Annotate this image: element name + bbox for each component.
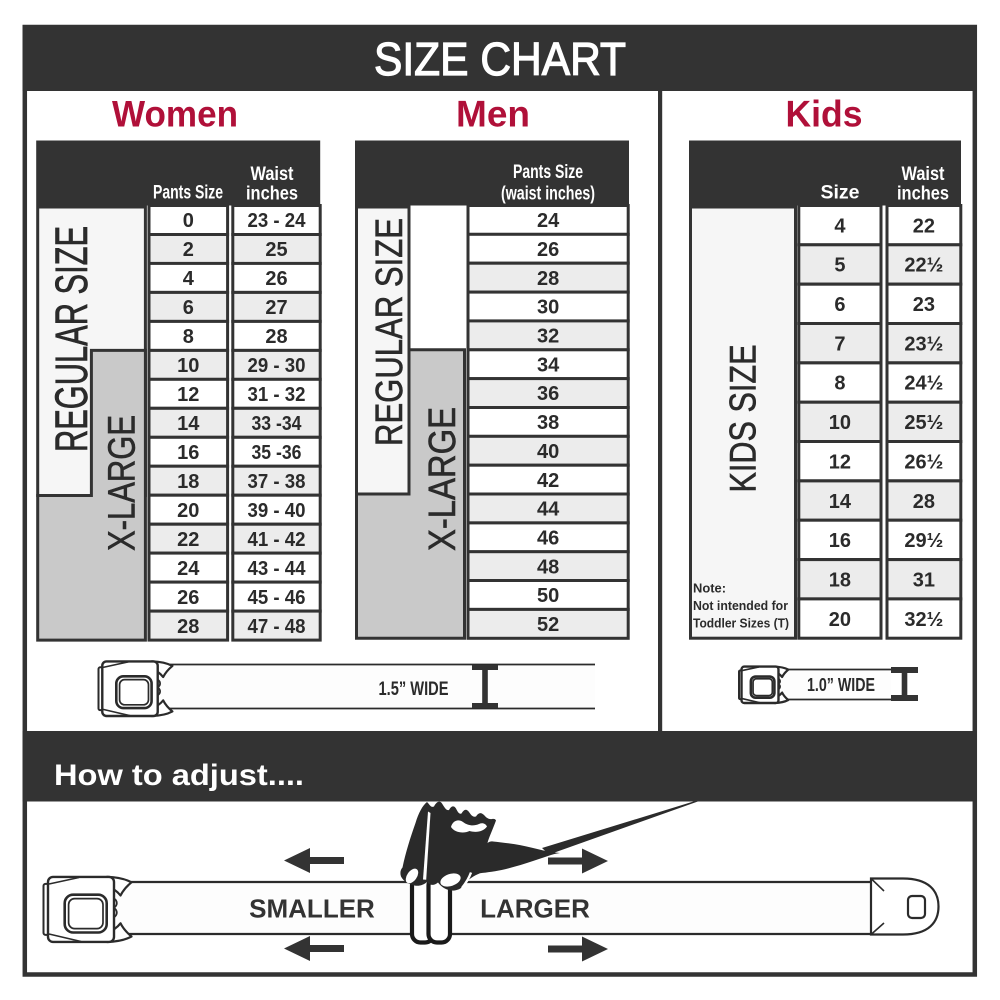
svg-text:29 - 30: 29 - 30 [248, 355, 306, 377]
svg-text:REGULAR SIZE: REGULAR SIZE [46, 226, 97, 452]
svg-text:38: 38 [537, 412, 559, 434]
svg-text:Note:: Note: [693, 581, 726, 596]
svg-text:29½: 29½ [904, 530, 943, 552]
svg-text:1.5” WIDE: 1.5” WIDE [379, 679, 449, 700]
svg-text:24½: 24½ [904, 373, 943, 395]
svg-text:27: 27 [265, 297, 287, 319]
svg-text:Not intended for: Not intended for [693, 598, 788, 613]
svg-text:40: 40 [537, 441, 559, 463]
svg-text:Kids: Kids [786, 94, 863, 135]
svg-text:10: 10 [177, 355, 199, 377]
svg-text:52: 52 [537, 614, 559, 636]
svg-text:28: 28 [265, 326, 287, 348]
svg-text:14: 14 [177, 413, 200, 435]
svg-text:6: 6 [183, 297, 194, 319]
svg-text:25: 25 [265, 239, 287, 261]
svg-text:46: 46 [537, 528, 559, 550]
svg-text:8: 8 [834, 373, 845, 395]
svg-text:Men: Men [456, 94, 530, 135]
svg-text:24: 24 [177, 558, 200, 580]
svg-text:16: 16 [829, 530, 851, 552]
svg-text:Women: Women [112, 94, 238, 135]
svg-text:4: 4 [834, 215, 846, 237]
svg-text:23½: 23½ [904, 333, 943, 355]
svg-text:REGULAR SIZE: REGULAR SIZE [369, 218, 411, 446]
svg-text:44: 44 [537, 499, 560, 521]
svg-text:16: 16 [177, 442, 199, 464]
svg-text:SMALLER: SMALLER [249, 894, 375, 924]
svg-text:30: 30 [537, 297, 559, 319]
svg-text:SIZE CHART: SIZE CHART [374, 33, 626, 85]
svg-text:26: 26 [265, 268, 287, 290]
svg-text:26: 26 [537, 239, 559, 261]
svg-text:26: 26 [177, 587, 199, 609]
svg-text:18: 18 [177, 471, 199, 493]
svg-text:32: 32 [537, 326, 559, 348]
svg-text:14: 14 [829, 491, 852, 513]
svg-text:(waist inches): (waist inches) [501, 183, 595, 205]
svg-text:33 -34: 33 -34 [252, 413, 303, 435]
svg-text:LARGER: LARGER [480, 894, 590, 924]
svg-text:22: 22 [913, 215, 935, 237]
svg-text:22: 22 [177, 529, 199, 551]
svg-text:8: 8 [183, 326, 194, 348]
svg-text:0: 0 [183, 210, 194, 232]
svg-text:20: 20 [177, 500, 199, 522]
svg-text:43 - 44: 43 - 44 [248, 558, 307, 580]
svg-text:35 -36: 35 -36 [252, 442, 302, 464]
svg-text:34: 34 [537, 354, 560, 376]
svg-text:41 - 42: 41 - 42 [248, 529, 306, 551]
svg-text:10: 10 [829, 412, 851, 434]
svg-text:X-LARGE: X-LARGE [422, 407, 464, 551]
svg-text:2: 2 [183, 239, 194, 261]
svg-text:5: 5 [834, 255, 845, 277]
svg-text:50: 50 [537, 585, 559, 607]
svg-text:45 - 46: 45 - 46 [248, 587, 306, 609]
svg-text:22½: 22½ [904, 255, 943, 277]
svg-text:28: 28 [537, 268, 559, 290]
svg-text:28: 28 [913, 491, 935, 513]
svg-text:31: 31 [913, 569, 935, 591]
svg-text:6: 6 [834, 294, 845, 316]
svg-text:KIDS SIZE: KIDS SIZE [723, 345, 764, 493]
svg-text:48: 48 [537, 556, 559, 578]
svg-text:28: 28 [177, 616, 199, 638]
svg-text:32½: 32½ [904, 609, 943, 631]
svg-text:24: 24 [537, 210, 560, 232]
svg-text:37 - 38: 37 - 38 [248, 471, 306, 493]
svg-text:X-LARGE: X-LARGE [102, 415, 144, 551]
svg-text:12: 12 [829, 451, 851, 473]
svg-text:inches: inches [897, 183, 949, 205]
svg-text:39 - 40: 39 - 40 [248, 500, 306, 522]
svg-text:12: 12 [177, 384, 199, 406]
svg-text:20: 20 [829, 609, 851, 631]
svg-text:18: 18 [829, 569, 851, 591]
svg-text:23 - 24: 23 - 24 [248, 210, 307, 232]
svg-text:Pants Size: Pants Size [153, 182, 223, 204]
svg-text:23: 23 [913, 294, 935, 316]
svg-text:47 - 48: 47 - 48 [248, 616, 306, 638]
svg-text:25½: 25½ [904, 412, 943, 434]
svg-text:inches: inches [246, 183, 298, 205]
svg-text:1.0” WIDE: 1.0” WIDE [807, 675, 875, 695]
svg-text:42: 42 [537, 470, 559, 492]
svg-text:36: 36 [537, 383, 559, 405]
svg-text:Size: Size [820, 182, 859, 204]
svg-text:7: 7 [834, 333, 845, 355]
svg-text:4: 4 [183, 268, 195, 290]
svg-text:Toddler Sizes (T): Toddler Sizes (T) [693, 616, 789, 631]
svg-text:How to adjust....: How to adjust.... [54, 759, 304, 792]
svg-text:31 - 32: 31 - 32 [248, 384, 306, 406]
svg-text:26½: 26½ [904, 451, 943, 473]
svg-text:Pants Size: Pants Size [513, 161, 583, 183]
